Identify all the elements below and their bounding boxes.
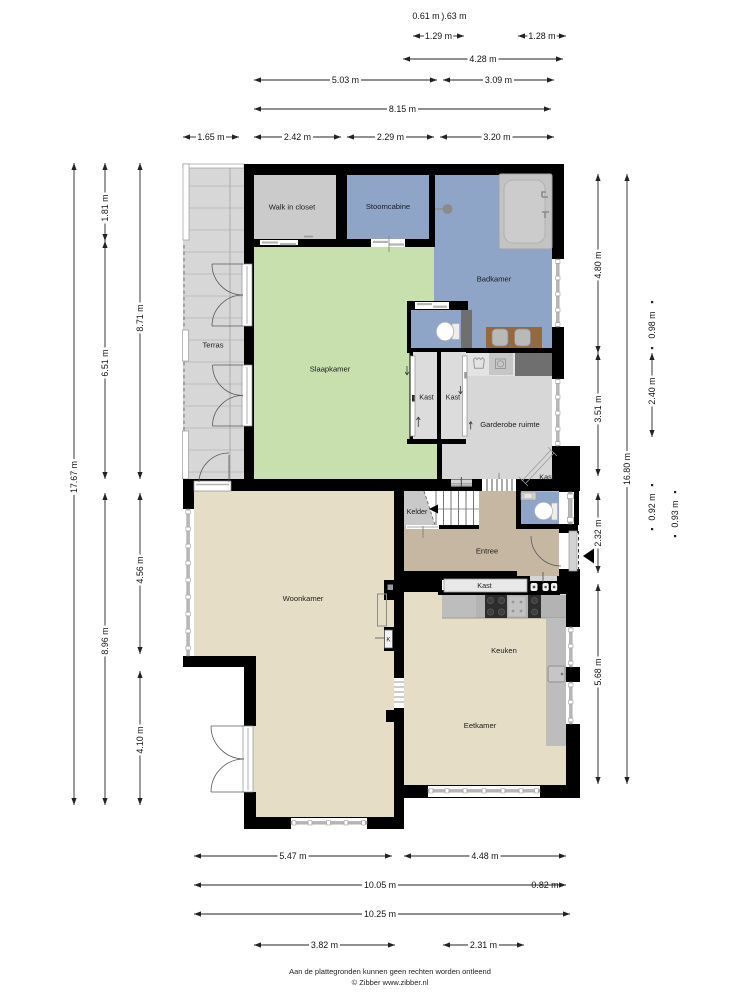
svg-text:Slaapkamer: Slaapkamer	[310, 365, 351, 374]
svg-text:Eetkamer: Eetkamer	[464, 721, 497, 730]
svg-text:Entree: Entree	[476, 546, 498, 555]
svg-text:Kast: Kast	[477, 581, 491, 590]
svg-text:2.42 m: 2.42 m	[284, 132, 311, 142]
svg-text:© Zibber www.zibber.nl: © Zibber www.zibber.nl	[352, 978, 429, 987]
svg-text:5.68 m: 5.68 m	[593, 658, 603, 685]
svg-text:5.47 m: 5.47 m	[279, 851, 306, 861]
svg-text:Badkamer: Badkamer	[477, 275, 512, 284]
svg-text:2.32 m: 2.32 m	[593, 519, 603, 546]
svg-text:Stoomcabine: Stoomcabine	[366, 202, 410, 211]
svg-text:2.40 m: 2.40 m	[647, 377, 657, 404]
svg-text:4.10 m: 4.10 m	[135, 726, 145, 753]
svg-text:3.82 m: 3.82 m	[311, 940, 338, 950]
svg-text:4.48 m: 4.48 m	[471, 851, 498, 861]
svg-text:Terras: Terras	[202, 341, 223, 350]
svg-text:Aan de plattegronden kunnen ge: Aan de plattegronden kunnen geen rechten…	[289, 967, 491, 976]
svg-text:1.81 m: 1.81 m	[100, 194, 110, 221]
svg-text:8.71 m: 8.71 m	[135, 304, 145, 331]
svg-text:17.67 m: 17.67 m	[69, 461, 79, 493]
svg-text:0.98 m: 0.98 m	[647, 311, 657, 338]
svg-text:0.92 m: 0.92 m	[647, 493, 657, 520]
svg-text:).63 m: ).63 m	[441, 11, 466, 21]
svg-text:3.51 m: 3.51 m	[593, 395, 603, 422]
svg-text:4.80 m: 4.80 m	[593, 251, 603, 278]
svg-text:1.65 m: 1.65 m	[197, 132, 224, 142]
svg-text:1.28 m: 1.28 m	[528, 31, 555, 41]
svg-text:0.61 m: 0.61 m	[412, 11, 439, 21]
svg-text:3.20 m: 3.20 m	[483, 132, 510, 142]
svg-text:Kast: Kast	[539, 473, 553, 482]
svg-text:3.09 m: 3.09 m	[485, 75, 512, 85]
svg-text:4.56 m: 4.56 m	[135, 556, 145, 583]
svg-text:0.82 m: 0.82 m	[531, 880, 558, 890]
svg-text:16.80 m: 16.80 m	[622, 453, 632, 485]
svg-text:2.31 m: 2.31 m	[470, 940, 497, 950]
svg-text:10.05 m: 10.05 m	[364, 880, 396, 890]
svg-text:Keuken: Keuken	[491, 646, 517, 655]
svg-text:2.29 m: 2.29 m	[377, 132, 404, 142]
svg-text:Kelder: Kelder	[407, 507, 428, 516]
svg-text:1.29 m: 1.29 m	[425, 31, 452, 41]
svg-text:Kast: Kast	[419, 393, 433, 402]
svg-text:Garderobe ruimte: Garderobe ruimte	[480, 420, 540, 429]
svg-text:Walk in closet: Walk in closet	[269, 203, 316, 212]
svg-text:6.51 m: 6.51 m	[100, 349, 110, 376]
svg-text:4.28 m: 4.28 m	[469, 54, 496, 64]
svg-text:8.15 m: 8.15 m	[389, 104, 416, 114]
svg-text:8.96 m: 8.96 m	[100, 627, 110, 654]
svg-text:10.25 m: 10.25 m	[364, 909, 396, 919]
svg-text:Woonkamer: Woonkamer	[283, 594, 324, 603]
svg-text:0.93 m: 0.93 m	[670, 500, 680, 527]
svg-text:Kast: Kast	[446, 393, 460, 402]
svg-text:5.03 m: 5.03 m	[332, 75, 359, 85]
